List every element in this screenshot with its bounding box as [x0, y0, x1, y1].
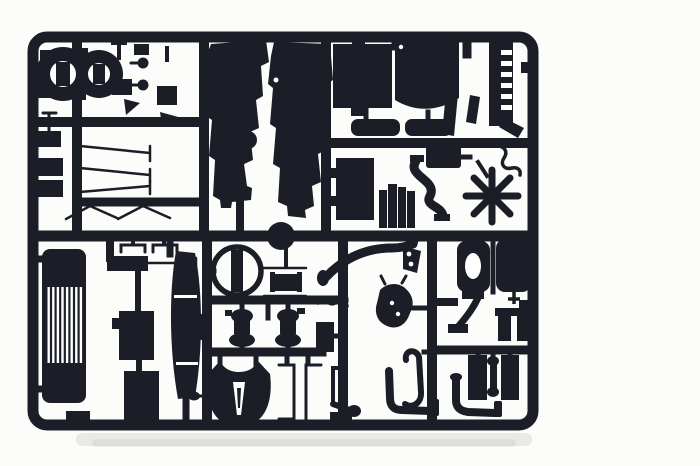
turbo-right-bottom	[275, 333, 301, 347]
cylinder-3	[398, 187, 406, 228]
radiator-core	[333, 44, 392, 108]
sprue-photo: Photograph of a black injection-molded m…	[0, 0, 700, 466]
fifth-wheel-pin	[188, 392, 200, 401]
small-block-3	[157, 86, 177, 105]
rail-bump-1	[66, 411, 90, 420]
cooling-fan-hub	[485, 189, 499, 203]
shadow-blur-inner	[92, 439, 516, 447]
pipe-flange-bottom	[434, 214, 450, 221]
exhaust-pipe-flange	[317, 270, 329, 286]
grille-slot-4	[61, 287, 63, 363]
mounting-bracket-1	[498, 316, 511, 341]
air-tank-plain	[496, 239, 531, 292]
strap-foot	[448, 324, 468, 333]
heat-shield-slit-4	[501, 83, 512, 88]
grille-slot-5	[66, 287, 68, 363]
rear-lamp-housing-1	[468, 355, 487, 400]
rail-bump-2	[124, 411, 150, 420]
grille-slot-1	[48, 287, 50, 363]
mounting-bracket-2	[517, 316, 530, 341]
heat-shield-slit-1	[501, 50, 512, 55]
side-box-3	[34, 180, 63, 197]
air-cleaner-left-hub	[56, 62, 70, 86]
pipe-flange-top	[410, 155, 424, 162]
engine-mount-hole-2	[396, 312, 400, 316]
axle-spool-bottom	[487, 387, 499, 397]
elbow-top-flange	[450, 373, 462, 381]
rear-lamp-housing-2	[501, 355, 519, 400]
heat-shield-slit-5	[501, 94, 512, 99]
axle-spool-waist	[490, 361, 497, 391]
grille-slot-8	[80, 287, 82, 363]
front-axle-body	[275, 274, 297, 291]
side-box-2	[34, 158, 63, 176]
engine-tab-2	[330, 196, 336, 206]
turbo-right-mid	[280, 318, 296, 334]
small-block-1	[112, 79, 132, 95]
cab-ejector-mark	[274, 78, 279, 83]
step-bracket-hole-2	[409, 262, 414, 267]
engine-mount-hole-1	[390, 301, 394, 305]
side-box-1	[34, 131, 61, 147]
engine-block	[336, 158, 374, 220]
axle-flange-right	[297, 272, 302, 292]
small-muffler-box	[316, 322, 334, 352]
rail-bump-3	[330, 412, 352, 421]
cylinder-1	[379, 190, 387, 228]
rail-nub-top	[521, 62, 531, 73]
elbow-flange-left	[430, 399, 439, 416]
battery-box	[119, 311, 154, 360]
air-cleaner-right-hub	[93, 64, 105, 84]
round-pin-2	[138, 80, 149, 91]
step-bracket-hole-1	[407, 252, 412, 257]
axle-flange-left	[270, 272, 275, 292]
heat-shield-slit-2	[501, 61, 512, 66]
intercooler	[426, 146, 461, 168]
turbo-left-stub	[225, 310, 232, 316]
battery-box-tab	[112, 318, 119, 329]
engine-tab-1	[330, 168, 336, 178]
blade-side-lug	[196, 314, 205, 340]
filler-cap	[267, 222, 295, 250]
round-pin-1	[138, 58, 149, 69]
pedal-disc	[239, 131, 257, 149]
steering-wheel-hub	[231, 250, 243, 292]
air-cleaner-lug-3	[38, 86, 54, 98]
grille-slot-6	[71, 287, 73, 363]
air-tank-foot	[462, 290, 484, 299]
turbo-right-stub	[297, 308, 305, 314]
grille-slot-3	[57, 287, 59, 363]
storage-box	[107, 256, 148, 271]
silencer-left	[351, 119, 400, 136]
blade-notch-1	[174, 295, 197, 298]
grille-slot-2	[52, 287, 54, 363]
heat-shield-slit-3	[501, 72, 512, 77]
rail-nub-bottom	[519, 300, 531, 314]
radiator-ejector-mark	[399, 45, 403, 49]
elbow-flange-right	[494, 401, 502, 417]
radiator-bottom-tab	[351, 108, 368, 116]
sprue-shadow	[76, 433, 532, 447]
cylinder-4	[407, 191, 415, 228]
radiator-top-tab	[352, 38, 365, 45]
air-cleaner-lug-1	[40, 50, 54, 62]
grille-slot-7	[75, 287, 77, 363]
photo-canvas: Photograph of a black injection-molded m…	[0, 0, 700, 466]
turbo-left-bottom	[229, 333, 255, 347]
small-block-2	[134, 44, 149, 55]
air-tank-port	[465, 253, 481, 279]
turbo-left-mid	[234, 318, 250, 334]
blade-notch-2	[176, 362, 198, 365]
cylinder-2	[388, 184, 397, 228]
pin-t-bar	[111, 40, 127, 45]
heat-shield-slit-6	[501, 105, 512, 110]
